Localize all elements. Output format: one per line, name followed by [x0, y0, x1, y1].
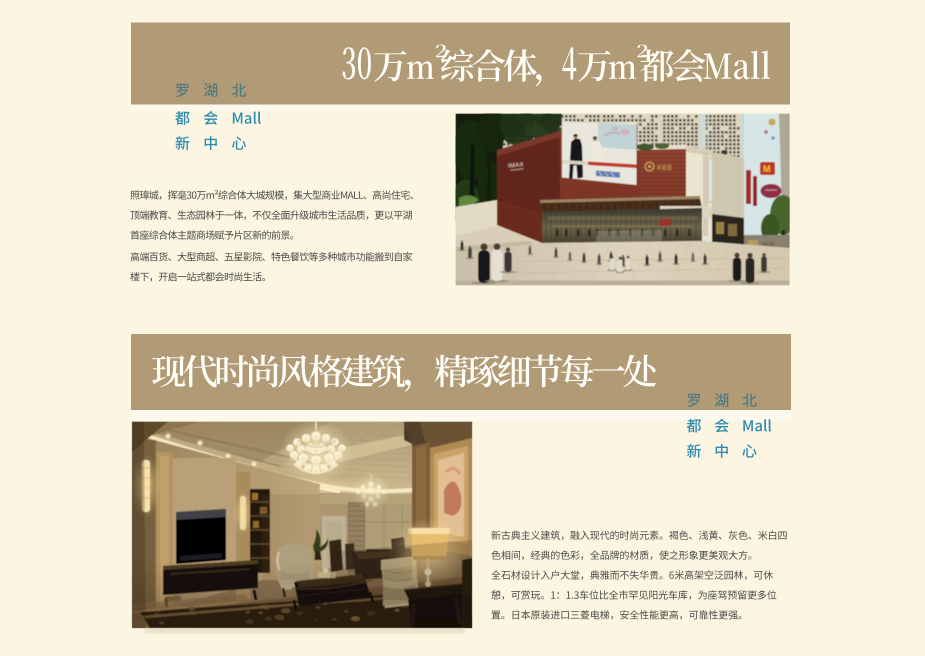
svg-text:M: M [763, 164, 771, 174]
svg-text:KEE: KEE [657, 165, 672, 172]
